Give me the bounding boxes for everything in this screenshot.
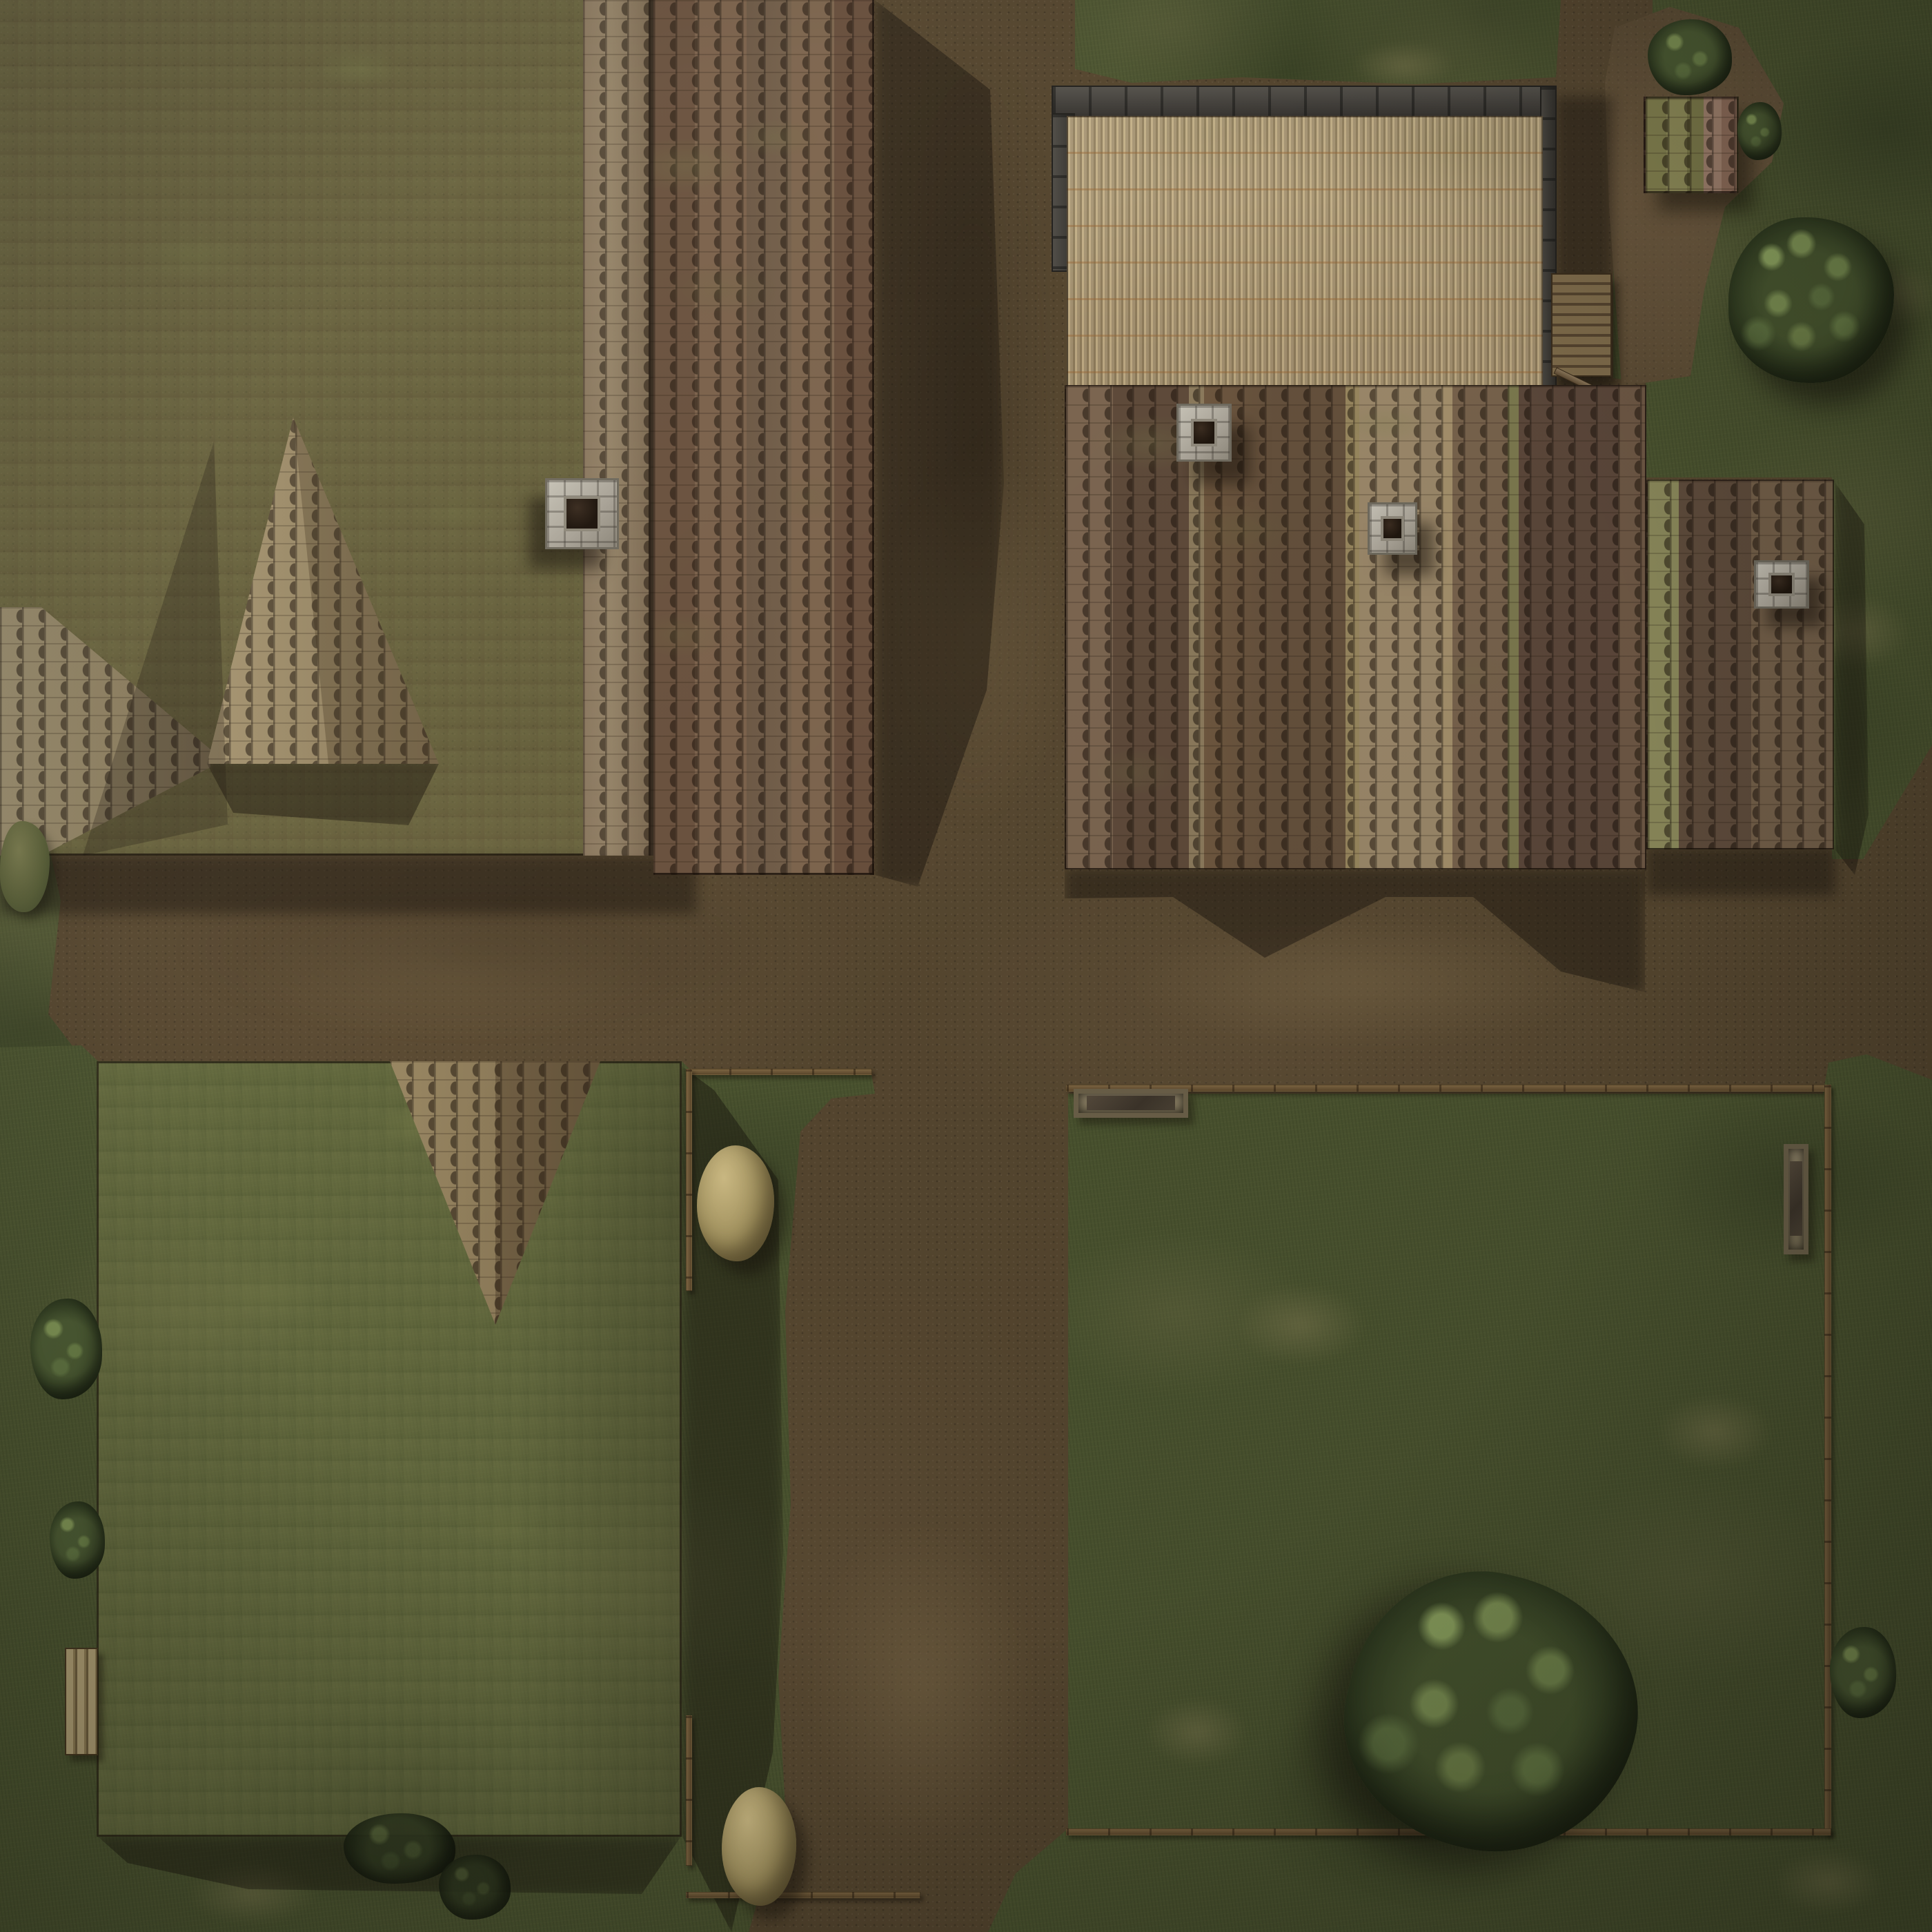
house-east-chimney-mid: [1368, 502, 1417, 555]
shed-northeast: [1644, 97, 1739, 193]
bush-south-dark-2: [439, 1855, 511, 1920]
house-east: [1065, 385, 1646, 869]
barn-thatched: [1052, 86, 1557, 386]
hall-chimney: [545, 478, 619, 549]
hall-east-slope: [583, 0, 653, 856]
barn-thatch-roof: [1067, 116, 1543, 386]
trough-interior: [1087, 1096, 1175, 1110]
bush-northeast-2: [1737, 102, 1782, 160]
dry-grass-patch: [1773, 1849, 1884, 1915]
dry-grass-patch: [1235, 1283, 1366, 1366]
trough-north: [1074, 1089, 1188, 1118]
annex-roof: [1646, 480, 1834, 849]
chimney-flue: [1381, 516, 1404, 541]
dry-grass-patch: [1656, 1394, 1773, 1470]
annex-chimney: [1754, 560, 1809, 609]
tree-northeast: [1728, 217, 1894, 383]
hall-right-wing-moss: [653, 83, 874, 773]
bush-northeast-1: [1648, 19, 1732, 95]
building-nw: [0, 0, 876, 918]
battlemap-canvas: [0, 0, 1932, 1932]
chimney-flue: [1191, 419, 1217, 447]
hay-bale-north: [697, 1145, 774, 1261]
shadow-annex-south: [1646, 847, 1835, 896]
bush-south-dark: [344, 1813, 455, 1884]
trough-interior: [1790, 1161, 1802, 1236]
bush-west-2: [50, 1501, 105, 1579]
dirt-light-patch: [807, 1518, 1035, 1849]
house-southwest: [97, 1061, 682, 1837]
dry-grass-patch: [1145, 1697, 1249, 1766]
bush-southeast: [1830, 1627, 1896, 1718]
chimney-flue: [564, 496, 600, 531]
hall-roof-valley-line: [649, 0, 653, 856]
house-east-annex: [1646, 480, 1834, 849]
house-east-moss: [1065, 385, 1646, 869]
hay-bale-south: [722, 1787, 796, 1906]
bench-southwest: [65, 1648, 98, 1755]
bush-west-1: [30, 1299, 102, 1399]
grass-north-band: [1075, 0, 1561, 84]
woodpile: [1551, 273, 1612, 377]
chimney-flue: [1768, 573, 1795, 595]
house-sw-east-shade: [97, 1061, 682, 1837]
house-east-chimney-west: [1176, 404, 1232, 462]
trough-east: [1784, 1144, 1808, 1254]
dry-grass-patch: [1352, 41, 1456, 90]
